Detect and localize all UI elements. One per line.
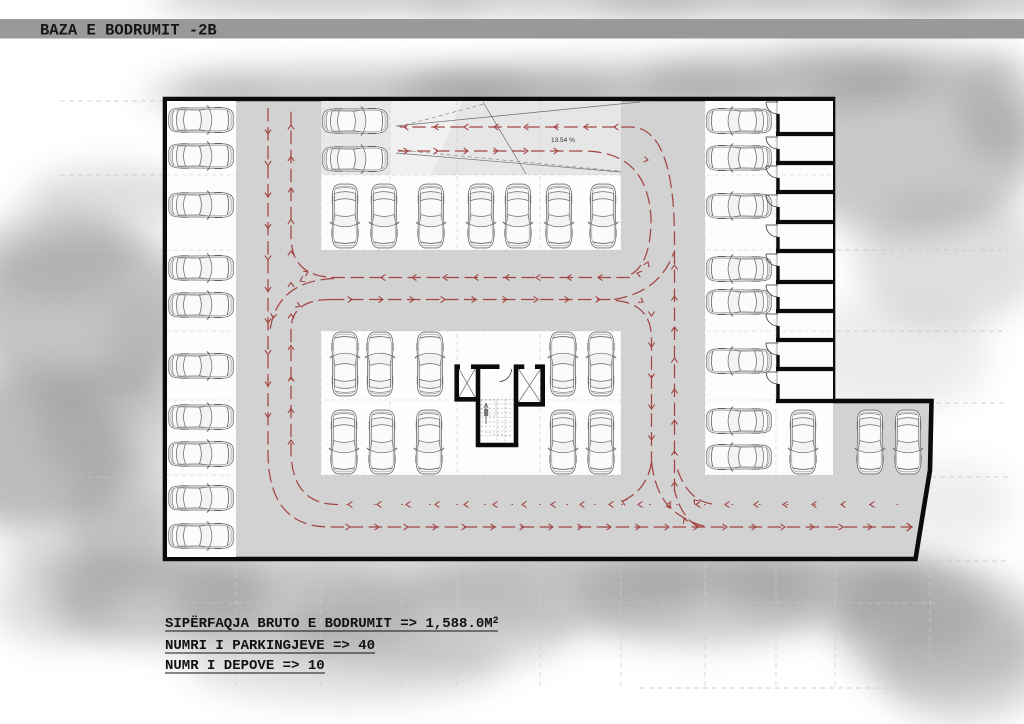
- svg-text:BAZA E BODRUMIT -2B: BAZA E BODRUMIT -2B: [40, 22, 217, 40]
- svg-text:SIPËRFAQJA BRUTO E BODRUMIT =>: SIPËRFAQJA BRUTO E BODRUMIT => 1,588.0M2: [165, 615, 499, 632]
- svg-text:NUMR I DEPOVE => 10: NUMR I DEPOVE => 10: [165, 658, 325, 674]
- svg-text:NUMRI I PARKINGJEVE => 40: NUMRI I PARKINGJEVE => 40: [165, 638, 375, 654]
- svg-text:13.54 %: 13.54 %: [551, 137, 575, 144]
